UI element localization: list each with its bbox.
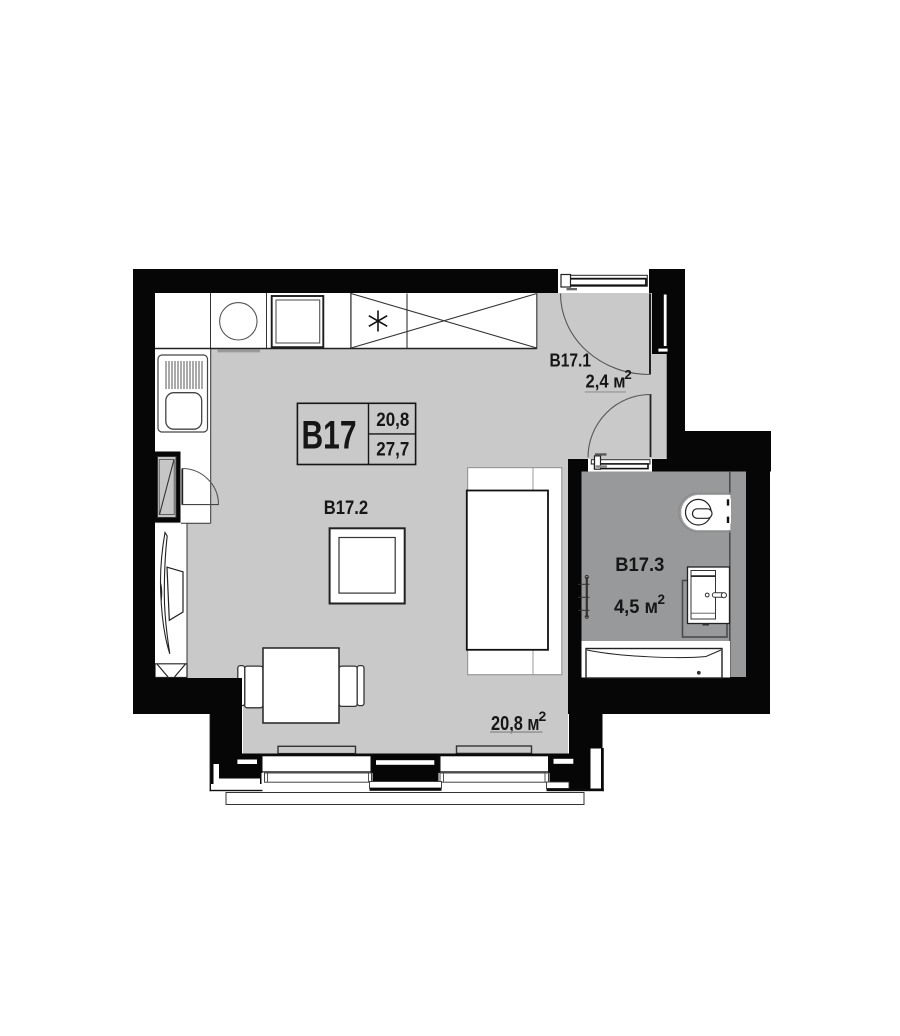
svg-text:2: 2 — [658, 592, 666, 607]
svg-text:B17: B17 — [302, 414, 357, 458]
svg-text:B17.3: B17.3 — [615, 554, 664, 576]
svg-text:2,4 м: 2,4 м — [586, 371, 626, 392]
svg-text:4,5 м: 4,5 м — [614, 596, 658, 618]
svg-text:2: 2 — [625, 367, 632, 382]
svg-text:27,7: 27,7 — [376, 439, 409, 460]
svg-text:B17.2: B17.2 — [324, 498, 368, 519]
svg-text:20,8: 20,8 — [376, 410, 409, 431]
svg-text:2: 2 — [539, 708, 547, 724]
svg-text:B17.1: B17.1 — [550, 350, 592, 371]
